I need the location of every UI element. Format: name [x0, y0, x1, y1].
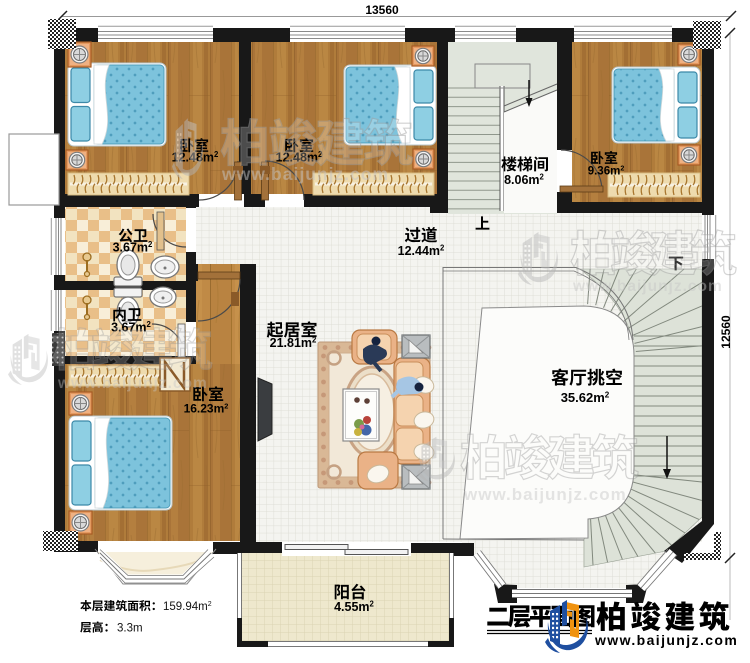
svg-text:12.44m2: 12.44m2 — [398, 244, 445, 258]
svg-text:12560: 12560 — [719, 315, 733, 349]
svg-text:13560: 13560 — [365, 3, 399, 17]
svg-text:4.55m2: 4.55m2 — [334, 600, 374, 614]
svg-text:www.baijunjz.com: www.baijunjz.com — [57, 375, 208, 392]
svg-text:3.3m: 3.3m — [117, 623, 143, 635]
svg-text:16.23m2: 16.23m2 — [184, 401, 229, 415]
svg-text:8.06m2: 8.06m2 — [504, 173, 544, 187]
svg-text:www.baijunjz.com: www.baijunjz.com — [594, 632, 738, 648]
svg-text:www.baijunjz.com: www.baijunjz.com — [572, 278, 723, 295]
svg-text:159.94m2: 159.94m2 — [163, 601, 212, 613]
svg-text:9.36m2: 9.36m2 — [588, 165, 625, 178]
svg-text:3.67m2: 3.67m2 — [113, 240, 153, 254]
svg-text:35.62m2: 35.62m2 — [561, 390, 610, 405]
svg-text:21.81m2: 21.81m2 — [270, 336, 317, 350]
svg-text:www.baijunjz.com: www.baijunjz.com — [221, 164, 389, 184]
svg-text:www.baijunjz.com: www.baijunjz.com — [463, 485, 627, 504]
